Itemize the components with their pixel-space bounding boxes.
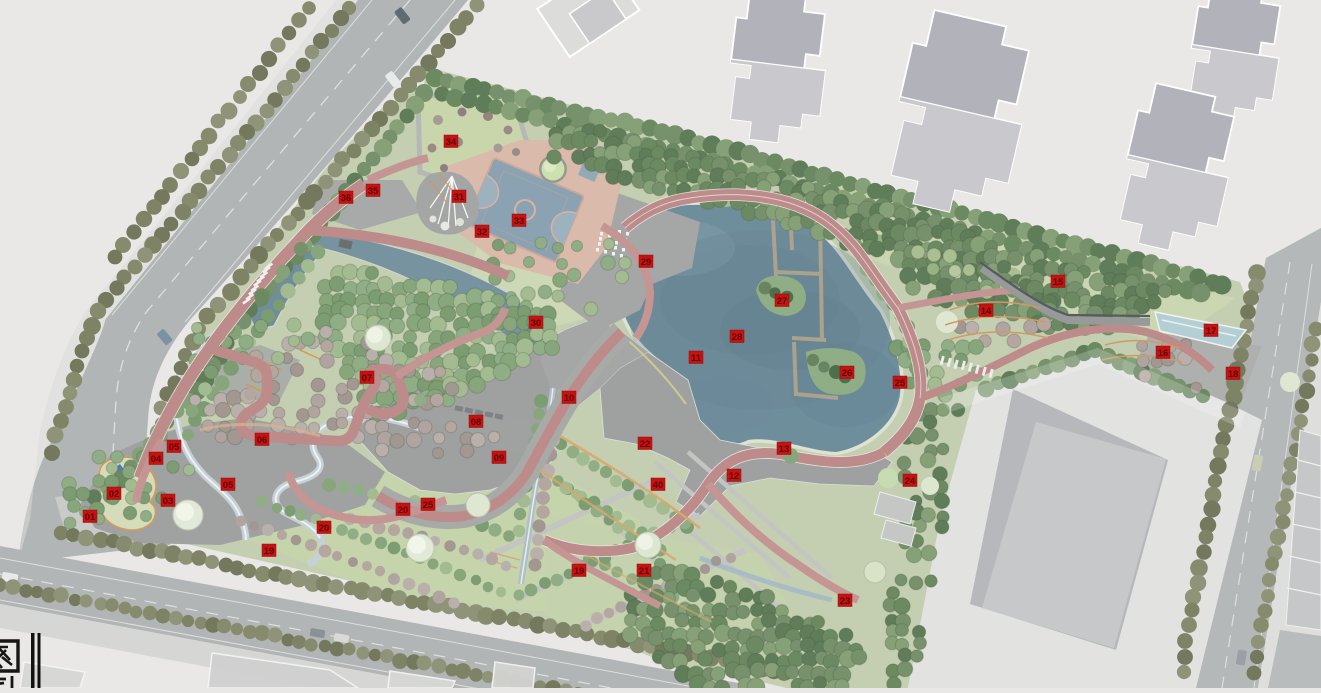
svg-text:36: 36	[341, 193, 352, 204]
svg-text:35: 35	[368, 186, 379, 197]
svg-text:04: 04	[151, 454, 162, 465]
svg-text:24: 24	[905, 476, 916, 487]
svg-text:13: 13	[779, 444, 790, 455]
svg-text:15: 15	[1053, 277, 1064, 288]
svg-text:01: 01	[85, 512, 96, 523]
svg-text:22: 22	[640, 439, 651, 450]
svg-text:17: 17	[1206, 326, 1217, 337]
svg-text:27: 27	[777, 296, 788, 307]
svg-text:20: 20	[319, 523, 330, 534]
svg-text:19: 19	[264, 546, 275, 557]
svg-text:19: 19	[574, 566, 585, 577]
svg-text:12: 12	[729, 471, 740, 482]
svg-text:07: 07	[362, 373, 373, 384]
svg-text:30: 30	[531, 318, 542, 329]
svg-text:20: 20	[398, 505, 409, 516]
svg-text:26: 26	[842, 368, 853, 379]
svg-text:34: 34	[446, 137, 457, 148]
svg-text:06: 06	[257, 435, 268, 446]
svg-text:31: 31	[454, 192, 465, 203]
svg-text:05: 05	[169, 442, 180, 453]
svg-text:25: 25	[423, 500, 434, 511]
svg-text:16: 16	[1158, 348, 1169, 359]
svg-text:33: 33	[514, 216, 525, 227]
svg-text:21: 21	[639, 566, 650, 577]
svg-text:08: 08	[471, 417, 482, 428]
svg-text:28: 28	[732, 332, 743, 343]
svg-text:02: 02	[109, 489, 120, 500]
svg-text:40: 40	[653, 480, 664, 491]
svg-text:32: 32	[477, 227, 488, 238]
svg-text:10: 10	[564, 393, 575, 404]
svg-text:11: 11	[691, 353, 702, 364]
svg-text:18: 18	[1228, 369, 1239, 380]
svg-text:05: 05	[223, 480, 234, 491]
svg-text:25: 25	[895, 378, 906, 389]
svg-text:14: 14	[981, 306, 992, 317]
svg-text:09: 09	[494, 453, 505, 464]
svg-text:23: 23	[840, 596, 851, 607]
svg-text:29: 29	[641, 257, 652, 268]
svg-text:03: 03	[163, 496, 174, 507]
